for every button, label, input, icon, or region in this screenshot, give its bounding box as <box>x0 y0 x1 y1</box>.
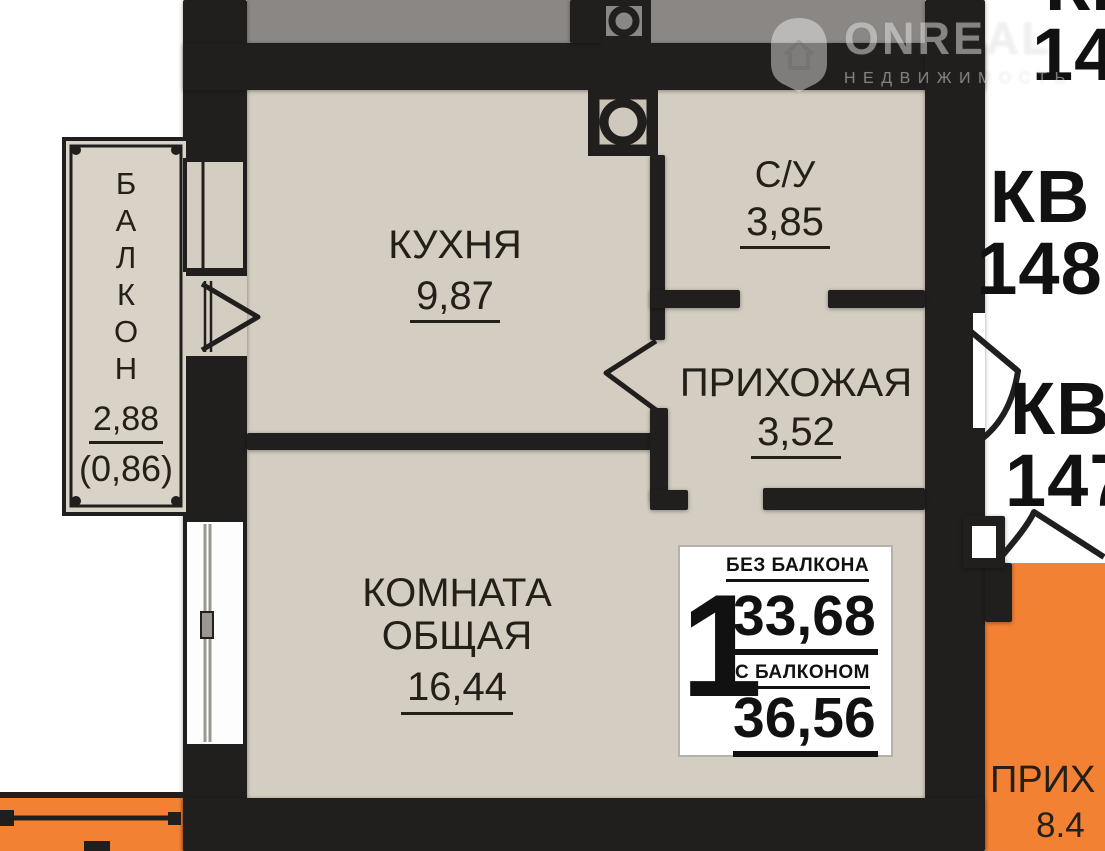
brand-logo-pin-icon <box>768 16 830 94</box>
apartment-148-num: 148 <box>972 232 1105 306</box>
watermark-brand: ONREAL <box>844 16 1073 61</box>
kv147-hallway-name: ПРИХ <box>990 760 1105 801</box>
floor-plan-canvas: Б А Л К О Н 2,88 (0,86) <box>0 0 1105 851</box>
balcony-letter: Н <box>115 350 137 387</box>
kv147-hallway-area: 8.4 <box>990 807 1105 845</box>
with-balcony-label: С БАЛКОНОМ <box>735 662 870 689</box>
living-room-area-value: 16,44 <box>401 666 513 714</box>
kv147-door-stub <box>985 563 1012 622</box>
balcony-area-value: 2,88 <box>89 400 163 444</box>
kv147-door-frame-inner <box>972 526 996 558</box>
kitchen-area-value: 9,87 <box>410 275 500 323</box>
bathroom-area-value: 3,85 <box>740 201 830 249</box>
balcony-area-coef: (0,86) <box>79 448 173 490</box>
bathroom-bottom-wall-right <box>828 290 925 308</box>
bathroom-left-wall <box>650 155 665 340</box>
balcony-letter: О <box>114 313 138 350</box>
apartment-147-kv: КВ <box>1010 372 1105 446</box>
no-balcony-value: 33,68 <box>733 587 878 655</box>
area-summary-box: 1 БЕЗ БАЛКОНА 33,68 С БАЛКОНОМ 36,56 <box>678 545 893 757</box>
kv147-hallway-label: ПРИХ 8.4 <box>990 760 1105 845</box>
kitchen-name: КУХНЯ <box>320 224 590 267</box>
entrance-opening-outside <box>973 313 985 428</box>
kitchen-living-wall <box>247 433 660 450</box>
bottom-wall <box>183 798 985 851</box>
kitchen-window <box>183 158 247 272</box>
apartment-148-kv: КВ <box>985 160 1095 234</box>
neighbor-divider-wall <box>570 0 600 43</box>
hallway-area-value: 3,52 <box>751 411 841 459</box>
bathroom-bottom-wall-left <box>650 290 740 308</box>
bathroom-label: С/У 3,85 <box>700 155 870 249</box>
hallway-corner-foot <box>650 490 688 510</box>
balcony-letter: А <box>116 202 137 239</box>
lower-balcony-floor <box>0 797 185 851</box>
with-balcony-value: 36,56 <box>733 689 878 757</box>
balcony-letter: Л <box>116 239 136 276</box>
hallway-bottom-wall <box>763 488 925 510</box>
balcony-letter: К <box>117 276 135 313</box>
no-balcony-label: БЕЗ БАЛКОНА <box>726 555 869 582</box>
watermark-tagline: НЕДВИЖИМОСТЬ <box>844 70 1073 88</box>
living-room-name-line1: КОМНАТА <box>327 572 587 615</box>
balcony-letter: Б <box>116 165 136 202</box>
living-room-window <box>183 518 247 748</box>
bathroom-name: С/У <box>700 155 870 195</box>
kitchen-label: КУХНЯ 9,87 <box>320 224 590 323</box>
living-room-name-line2: ОБЩАЯ <box>327 615 587 658</box>
watermark: ONREAL НЕДВИЖИМОСТЬ <box>768 16 1073 94</box>
balcony-door-gap <box>183 276 247 356</box>
lower-balcony-top-line <box>0 792 185 798</box>
balcony-outline: Б А Л К О Н 2,88 (0,86) <box>62 137 190 516</box>
balcony-label: Б А Л К О Н 2,88 (0,86) <box>66 165 186 490</box>
hallway-label: ПРИХОЖАЯ 3,52 <box>660 362 932 459</box>
apartment-147-num: 147 <box>1005 444 1105 518</box>
living-room-label: КОМНАТА ОБЩАЯ 16,44 <box>327 572 587 715</box>
watermark-text: ONREAL НЕДВИЖИМОСТЬ <box>844 16 1073 88</box>
hallway-name: ПРИХОЖАЯ <box>660 362 932 405</box>
